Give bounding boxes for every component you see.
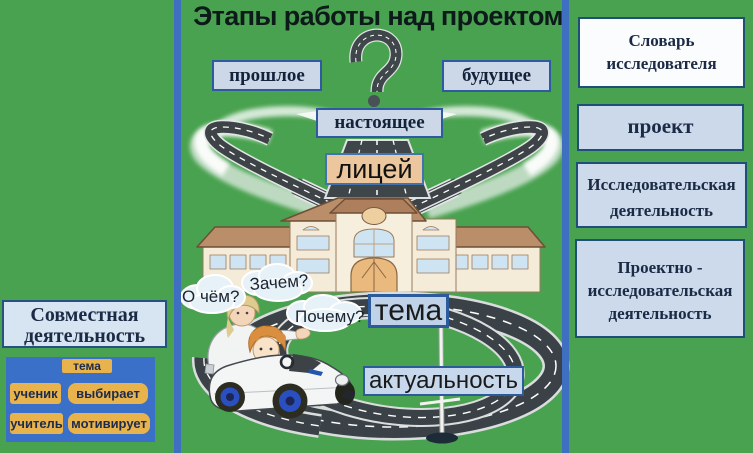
svg-text:О чём?: О чём? (182, 287, 239, 306)
svg-text:Почему?: Почему? (295, 307, 364, 326)
